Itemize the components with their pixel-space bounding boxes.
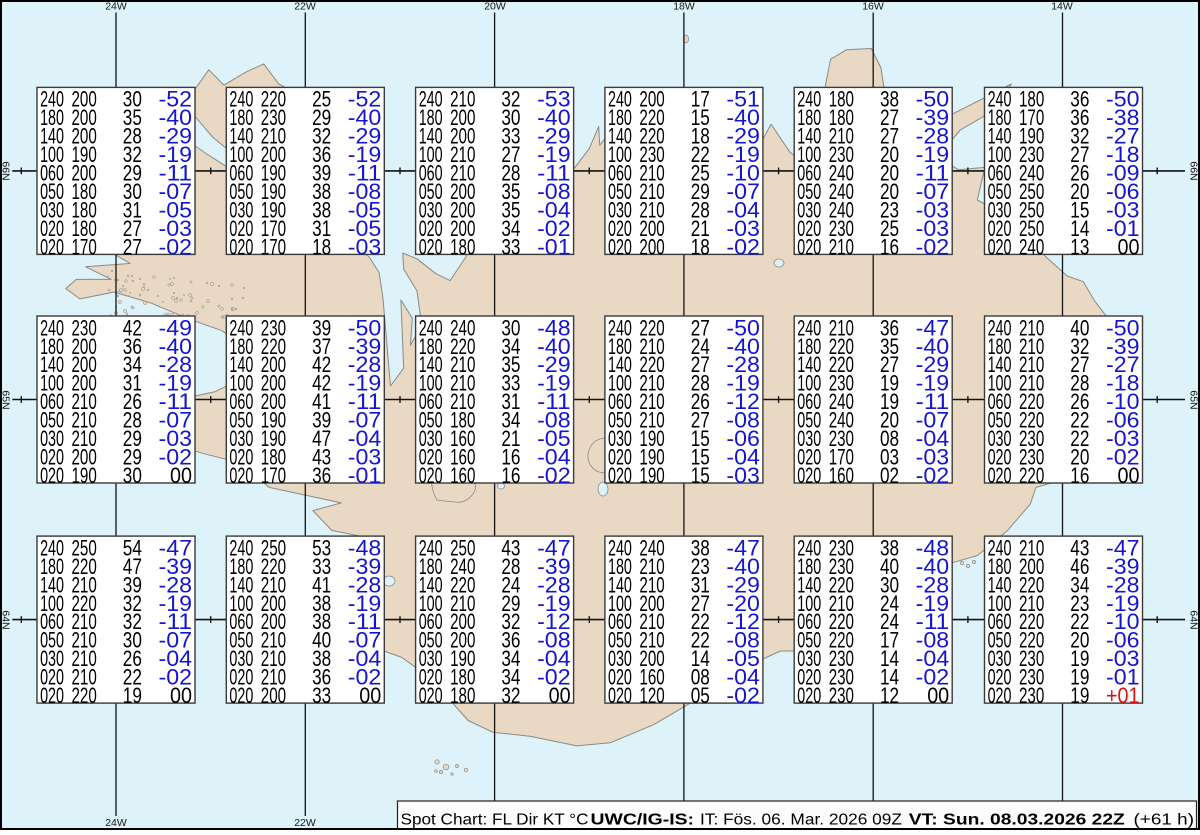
svg-text:18: 18 — [691, 234, 710, 259]
svg-text:65N: 65N — [1188, 390, 1200, 409]
svg-text:210: 210 — [829, 234, 854, 259]
svg-text:020: 020 — [797, 463, 821, 488]
svg-text:-02: -02 — [916, 463, 950, 488]
svg-text:-01: -01 — [537, 234, 571, 259]
svg-text:16: 16 — [501, 463, 520, 488]
svg-text:180: 180 — [450, 683, 475, 708]
svg-text:020: 020 — [797, 234, 821, 259]
svg-text:30: 30 — [123, 463, 142, 488]
svg-text:-02: -02 — [159, 234, 193, 259]
svg-text:UWC/IG-IS:: UWC/IG-IS: — [591, 812, 695, 829]
svg-text:13: 13 — [1070, 234, 1089, 259]
svg-text:020: 020 — [988, 234, 1012, 259]
svg-text:240: 240 — [1019, 234, 1044, 259]
svg-text:-02: -02 — [537, 463, 571, 488]
svg-text:18W: 18W — [673, 1, 695, 13]
svg-text:020: 020 — [419, 234, 443, 259]
svg-text:-02: -02 — [916, 234, 950, 259]
svg-text:020: 020 — [419, 463, 443, 488]
svg-text:00: 00 — [1118, 463, 1140, 488]
svg-text:200: 200 — [639, 234, 664, 259]
svg-text:22W: 22W — [294, 1, 316, 13]
svg-text:020: 020 — [988, 683, 1012, 708]
svg-text:19: 19 — [123, 683, 142, 708]
svg-text:IT: Fös. 06. Mar. 2026 09Z: IT: Fös. 06. Mar. 2026 09Z — [700, 812, 902, 829]
svg-text:32: 32 — [501, 683, 520, 708]
svg-text:020: 020 — [608, 683, 632, 708]
svg-text:020: 020 — [40, 683, 64, 708]
svg-text:160: 160 — [450, 463, 475, 488]
svg-text:020: 020 — [229, 683, 253, 708]
svg-text:-02: -02 — [726, 234, 760, 259]
svg-text:170: 170 — [261, 234, 286, 259]
svg-text:24W: 24W — [105, 817, 127, 829]
svg-text:230: 230 — [829, 683, 854, 708]
svg-text:66N: 66N — [1188, 161, 1200, 180]
svg-text:(+61 h): (+61 h) — [1134, 812, 1195, 829]
svg-text:120: 120 — [639, 683, 664, 708]
svg-text:220: 220 — [72, 683, 97, 708]
svg-text:020: 020 — [229, 234, 253, 259]
svg-text:12: 12 — [880, 683, 899, 708]
svg-text:33: 33 — [312, 683, 331, 708]
svg-text:27: 27 — [123, 234, 142, 259]
svg-text:Spot Chart: FL Dir KT °C: Spot Chart: FL Dir KT °C — [401, 812, 589, 829]
svg-text:020: 020 — [988, 463, 1012, 488]
svg-text:-03: -03 — [348, 234, 382, 259]
svg-text:020: 020 — [40, 234, 64, 259]
svg-text:190: 190 — [72, 463, 97, 488]
svg-text:19: 19 — [1070, 683, 1089, 708]
svg-text:-01: -01 — [348, 463, 382, 488]
svg-text:00: 00 — [927, 683, 949, 708]
svg-text:00: 00 — [170, 683, 192, 708]
svg-text:220: 220 — [1019, 463, 1044, 488]
svg-text:170: 170 — [72, 234, 97, 259]
svg-text:190: 190 — [639, 463, 664, 488]
svg-text:00: 00 — [170, 463, 192, 488]
svg-text:15: 15 — [691, 463, 710, 488]
svg-text:020: 020 — [608, 463, 632, 488]
svg-text:64N: 64N — [1188, 610, 1200, 629]
svg-text:020: 020 — [229, 463, 253, 488]
svg-text:24W: 24W — [105, 1, 127, 13]
svg-text:16: 16 — [880, 234, 899, 259]
svg-text:16: 16 — [1070, 463, 1089, 488]
svg-text:020: 020 — [797, 683, 821, 708]
svg-text:36: 36 — [312, 463, 331, 488]
svg-text:020: 020 — [608, 234, 632, 259]
svg-text:170: 170 — [261, 463, 286, 488]
svg-text:200: 200 — [261, 683, 286, 708]
svg-text:05: 05 — [691, 683, 710, 708]
svg-text:180: 180 — [450, 234, 475, 259]
svg-text:18: 18 — [312, 234, 331, 259]
svg-text:-02: -02 — [726, 683, 760, 708]
svg-text:00: 00 — [1118, 234, 1140, 259]
svg-text:160: 160 — [829, 463, 854, 488]
svg-text:02: 02 — [880, 463, 899, 488]
svg-text:230: 230 — [1019, 683, 1044, 708]
svg-text:-03: -03 — [726, 463, 760, 488]
svg-text:+01: +01 — [1106, 683, 1140, 708]
svg-text:020: 020 — [40, 463, 64, 488]
svg-text:22W: 22W — [294, 817, 316, 829]
svg-text:00: 00 — [359, 683, 381, 708]
svg-text:00: 00 — [549, 683, 571, 708]
svg-text:14W: 14W — [1051, 1, 1073, 13]
svg-text:020: 020 — [419, 683, 443, 708]
svg-text:33: 33 — [501, 234, 520, 259]
svg-text:VT: Sun. 08.03.2026 22Z: VT: Sun. 08.03.2026 22Z — [909, 812, 1125, 829]
svg-text:16W: 16W — [862, 1, 884, 13]
svg-text:20W: 20W — [484, 1, 506, 13]
